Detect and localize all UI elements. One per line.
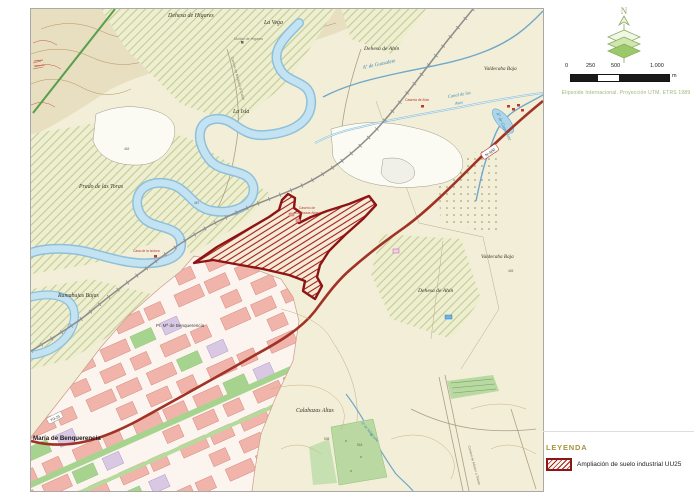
scale-tick-250: 250 <box>586 63 595 69</box>
north-arrow: N <box>598 4 650 64</box>
label-caseria-ahin: Casería de Ahín <box>405 98 429 102</box>
label-camino-anover: Camino de Añover a Toledo <box>467 445 481 485</box>
legend-title: LEYENDA <box>546 443 587 452</box>
label-calabazas-altas: Calabazas Altas <box>296 408 334 414</box>
spot-height: 518 <box>357 443 363 447</box>
legend-divider <box>543 431 694 432</box>
map-canvas: Dehesa de Higares La Vega Molino de Higa… <box>30 8 544 492</box>
label-la-vega: La Vega <box>263 20 283 26</box>
label-dehesa-ahin-mid: Dehesa de Ahín <box>417 288 454 294</box>
label-casa-isidora: Casa de la Isidora <box>133 249 160 253</box>
label-canal-aves-2: Aves <box>453 100 463 107</box>
label-caserio-2: Calabazas Altas <box>295 211 319 215</box>
scale-tick-500: 500 <box>611 63 620 69</box>
projection-note: Elipsoide Internacional. Proyección UTM.… <box>556 90 696 96</box>
label-prado-toras: Prado de las Toras <box>78 184 124 190</box>
spot-height: 463 <box>124 147 130 151</box>
label-valdecaba-mid: Valdecaba Baja <box>481 254 514 260</box>
layers-icon <box>608 30 640 63</box>
label-poligono: Pl. Mª de Benquerencia <box>156 323 205 328</box>
spot-height: 467 <box>194 201 200 205</box>
label-caserio-1: Caserío de <box>299 206 315 210</box>
label-la-isla: La Isla <box>232 109 249 115</box>
label-ramabujas: Ramabujas Bajas <box>57 293 99 299</box>
label-valdecaba-top: Valdecaba Baja <box>484 66 517 72</box>
label-guasalete-top: Aº de Guasalete <box>361 58 396 71</box>
scale-unit: m <box>672 73 677 79</box>
uu25-swatch-icon <box>546 458 572 471</box>
scale-bar-graphic <box>570 74 670 82</box>
scale-tick-0: 0 <box>565 63 568 69</box>
label-dehesa-ahin-top: Dehesa de Ahín <box>363 46 400 52</box>
scale-tick-1000: 1.000 <box>650 63 664 69</box>
label-molino: Molino de Higares <box>234 37 263 41</box>
legend-item: Ampliación de suelo industrial UU25 <box>546 458 681 471</box>
label-canal-aves-1: Canal de las <box>447 90 471 99</box>
vegetation <box>309 375 499 485</box>
legend-item-label: Ampliación de suelo industrial UU25 <box>577 461 681 468</box>
label-maria-benquerencia: María de Benquerencia <box>33 435 101 442</box>
spot-height: 508 <box>324 437 330 441</box>
label-dehesa-higares: Dehesa de Higares <box>167 13 214 19</box>
page: Dehesa de Higares La Vega Molino de Higa… <box>0 0 696 498</box>
north-arrowhead-icon <box>619 16 629 25</box>
spot-height: 445 <box>508 269 514 273</box>
north-label: N <box>621 6 628 16</box>
